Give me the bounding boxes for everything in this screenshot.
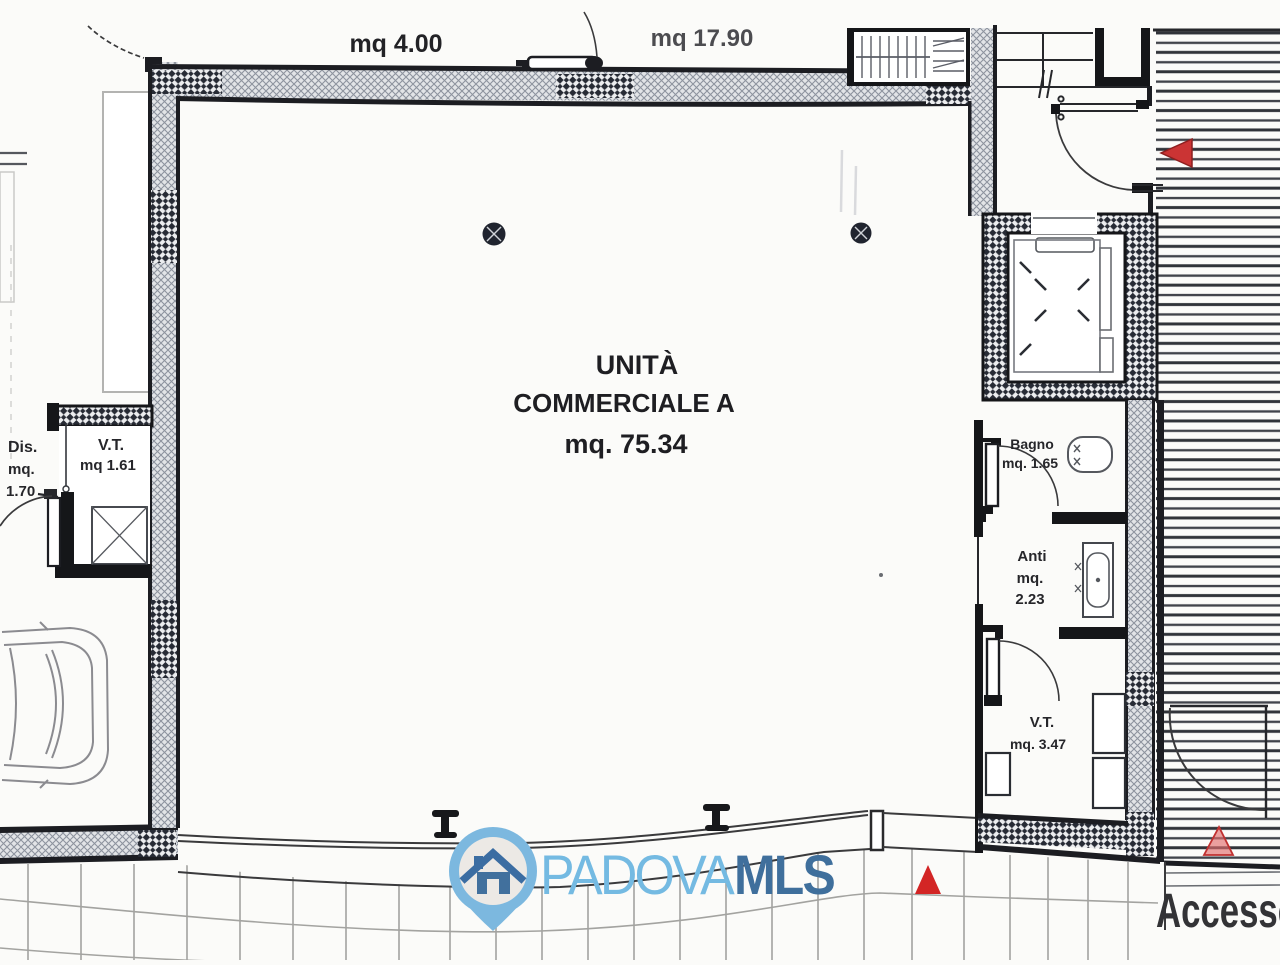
svg-text:Accesso: Accesso — [1156, 885, 1280, 938]
svg-text:V.T.: V.T. — [1030, 714, 1054, 731]
svg-text:mq 1.61: mq 1.61 — [80, 457, 136, 474]
svg-text:MLS: MLS — [734, 843, 835, 906]
svg-text:Anti: Anti — [1017, 548, 1046, 565]
svg-text:mq 17.90: mq 17.90 — [651, 25, 754, 52]
svg-text:V.T.: V.T. — [98, 437, 124, 454]
svg-text:COMMERCIALE A: COMMERCIALE A — [513, 388, 735, 418]
svg-text:mq. 75.34: mq. 75.34 — [564, 429, 687, 459]
svg-text:2.23: 2.23 — [1015, 591, 1044, 608]
svg-text:UNITÀ: UNITÀ — [596, 349, 679, 380]
svg-text:PADOVA: PADOVA — [540, 843, 735, 906]
svg-text:mq. 3.47: mq. 3.47 — [1010, 736, 1066, 752]
svg-text:mq.: mq. — [1017, 570, 1044, 587]
svg-text:mq. 1.65: mq. 1.65 — [1002, 455, 1058, 471]
svg-text:Bagno: Bagno — [1010, 436, 1054, 452]
svg-text:mq.: mq. — [8, 461, 35, 478]
svg-text:Dis.: Dis. — [8, 439, 37, 456]
svg-text:mq 4.00: mq 4.00 — [349, 30, 442, 58]
svg-text:1.70: 1.70 — [6, 483, 35, 500]
